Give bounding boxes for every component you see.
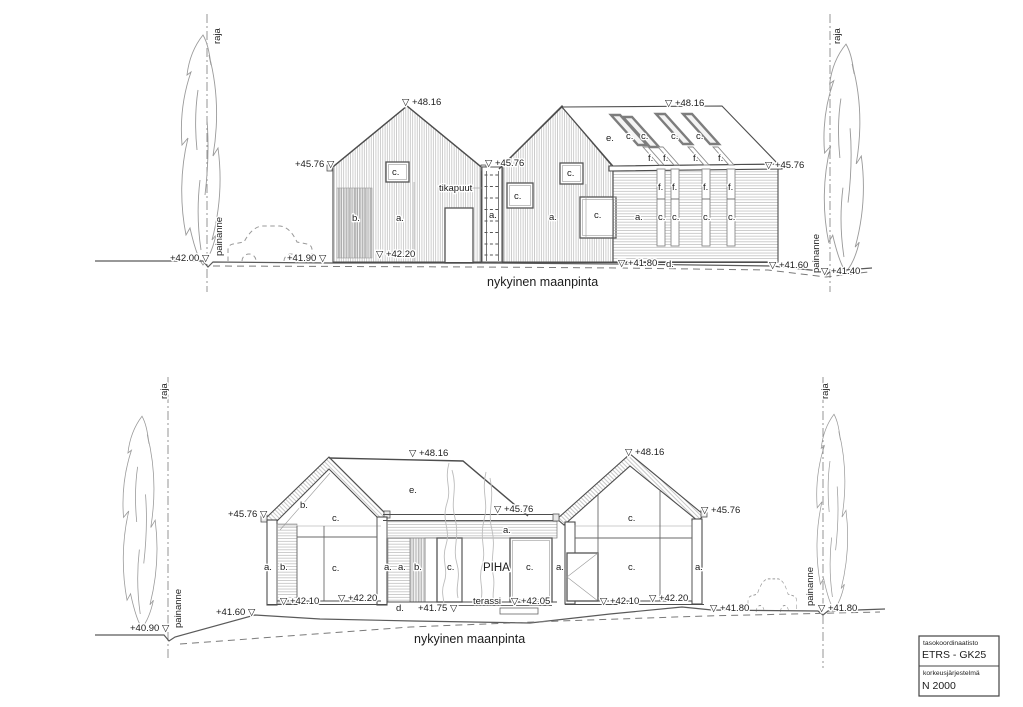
part-c-window-4: c. bbox=[594, 210, 601, 221]
height-system-value: N 2000 bbox=[922, 680, 956, 692]
level-floor-42-10-left: ▽ +42.10 bbox=[280, 596, 319, 607]
part-a-right-wall: a. bbox=[695, 562, 703, 573]
ground-surface-label: nykyinen maanpinta bbox=[414, 632, 525, 646]
part-b-left-band: b. bbox=[280, 562, 288, 573]
proposed-ground-line bbox=[95, 261, 872, 275]
tree-right bbox=[817, 414, 848, 610]
coordinate-system-value: ETRS - GK25 bbox=[922, 649, 986, 661]
fascia-band bbox=[387, 521, 557, 538]
part-f-roof-3: f. bbox=[693, 153, 698, 164]
part-f-roof-2: f. bbox=[663, 153, 668, 164]
part-a-mid-1: a. bbox=[384, 562, 392, 573]
level-floor-42-10-right: ▽ +42.10 bbox=[600, 596, 639, 607]
part-c-window-2: c. bbox=[514, 191, 521, 202]
ladder-label: tikapuut bbox=[439, 183, 473, 194]
depression-right-label: painanne bbox=[805, 567, 816, 606]
elevation-drawing-sheet: ▽ +48.16+45.76 ▽▽ +45.76▽ +48.16▽ +45.76… bbox=[0, 0, 1023, 707]
level-ridge-right-house: ▽ +48.16 bbox=[665, 98, 704, 109]
part-c-strip-3: c. bbox=[703, 212, 710, 223]
part-b-roof-inner: b. bbox=[300, 500, 308, 511]
part-d-ground: d. bbox=[396, 603, 404, 614]
part-a-wall-1: a. bbox=[396, 213, 404, 224]
level-ground-40-90: +40.90 ▽ bbox=[130, 623, 170, 634]
part-a-ladder-bay: a. bbox=[489, 210, 497, 221]
tree-left bbox=[123, 416, 157, 628]
part-a-mid-2: a. bbox=[398, 562, 406, 573]
level-eave-right-house: ▽ +45.76 bbox=[765, 160, 804, 171]
level-floor-42-20: ▽ +42.20 bbox=[376, 249, 415, 260]
boundary-left-label: raja bbox=[212, 27, 223, 44]
level-eave-left-house: +45.76 ▽ bbox=[228, 509, 268, 520]
part-c-skylight-2: c. bbox=[641, 131, 648, 142]
roof-band bbox=[265, 457, 387, 526]
level-eave-left-house: +45.76 ▽ bbox=[295, 159, 335, 170]
part-c-main-window-right: c. bbox=[628, 562, 635, 573]
part-b-mid: b. bbox=[414, 562, 422, 573]
ground-surface-label: nykyinen maanpinta bbox=[487, 275, 598, 289]
title-block: tasokoordinaatisto ETRS - GK25 korkeusjä… bbox=[919, 636, 999, 696]
part-f-strip-4: f. bbox=[728, 182, 733, 193]
part-c-skylight-1: c. bbox=[626, 131, 633, 142]
part-d-ground: d. bbox=[666, 259, 674, 270]
bottom-elevation: ▽ +48.16▽ +48.16+45.76 ▽▽ +45.76▽ +45.76… bbox=[95, 377, 885, 668]
part-f-roof-4: f. bbox=[718, 153, 723, 164]
part-c-mid-1: c. bbox=[447, 562, 454, 573]
part-c-gable-right: c. bbox=[628, 513, 635, 524]
door bbox=[445, 208, 473, 263]
left-house-section bbox=[261, 457, 390, 605]
top-elevation: ▽ +48.16+45.76 ▽▽ +45.76▽ +48.16▽ +45.76… bbox=[95, 14, 872, 292]
boundary-left-label: raja bbox=[159, 382, 170, 399]
level-ground-41-60: +41.60 ▽ bbox=[216, 607, 256, 618]
level-ground-42-00: +42.00 ▽ bbox=[170, 253, 210, 264]
level-floor-42-20-left: ▽ +42.20 bbox=[338, 593, 377, 604]
courtyard-label: PIHA bbox=[483, 562, 510, 574]
part-c-skylight-3: c. bbox=[671, 131, 678, 142]
right-house-section bbox=[553, 454, 707, 605]
boundary-right-label: raja bbox=[832, 27, 843, 44]
part-a-left-wall: a. bbox=[264, 562, 272, 573]
terrace-label: terassi bbox=[473, 596, 501, 607]
level-ground-41-80-2: ▽ +41.80 bbox=[818, 603, 857, 614]
level-ridge-line: ▽ +48.16 bbox=[409, 448, 448, 459]
level-eave-middle: ▽ +45.76 bbox=[494, 504, 533, 515]
part-f-strip-3: f. bbox=[703, 182, 708, 193]
level-ground-41-40: ▽ +41.40 bbox=[821, 266, 860, 277]
level-floor-42-20-right: ▽ +42.20 bbox=[649, 593, 688, 604]
level-ground-41-90: +41.90 ▽ bbox=[287, 253, 327, 264]
level-ground-41-75: +41.75 ▽ bbox=[418, 603, 458, 614]
part-c-window-3: c. bbox=[567, 168, 574, 179]
part-e-roof: e. bbox=[409, 485, 417, 496]
depression-left-label: painanne bbox=[173, 589, 184, 628]
part-a-fascia: a. bbox=[503, 525, 511, 536]
door-post bbox=[425, 538, 437, 602]
part-c-window-1: c. bbox=[392, 167, 399, 178]
level-ground-41-80: ▽ +41.80 bbox=[618, 258, 657, 269]
part-f-strip-2: f. bbox=[672, 182, 677, 193]
level-eave-right-house: ▽ +45.76 bbox=[701, 505, 740, 516]
part-f-strip-1: f. bbox=[658, 182, 663, 193]
level-ridge-right-house: ▽ +48.16 bbox=[625, 447, 664, 458]
depression-left-label: painanne bbox=[214, 217, 225, 256]
part-c-gable-window: c. bbox=[332, 513, 339, 524]
part-c-mid-2: c. bbox=[526, 562, 533, 573]
part-b-screen: b. bbox=[352, 213, 360, 224]
height-system-label: korkeusjärjestelmä bbox=[923, 670, 980, 677]
part-a-wall-2: a. bbox=[549, 212, 557, 223]
braced-door bbox=[567, 553, 598, 601]
bottom-elevation-labels: ▽ +48.16▽ +48.16+45.76 ▽▽ +45.76▽ +45.76… bbox=[130, 382, 857, 646]
part-a-mid-3: a. bbox=[556, 562, 564, 573]
level-ground-41-80-1: ▽ +41.80 bbox=[710, 603, 749, 614]
part-c-skylight-4: c. bbox=[696, 131, 703, 142]
part-a-wall-3: a. bbox=[635, 212, 643, 223]
right-wall bbox=[377, 517, 387, 605]
boundary-right-label: raja bbox=[820, 382, 831, 399]
level-ridge-left-house: ▽ +48.16 bbox=[402, 97, 441, 108]
part-c-strip-1: c. bbox=[658, 212, 665, 223]
eave-block bbox=[553, 514, 559, 521]
terrace-step bbox=[500, 608, 538, 614]
car-outline bbox=[748, 579, 797, 612]
level-ground-41-60: ▽ +41.60 bbox=[769, 260, 808, 271]
part-c-strip-4: c. bbox=[728, 212, 735, 223]
depression-right-label: painanne bbox=[811, 234, 822, 273]
part-c-main-window-left: c. bbox=[332, 563, 339, 574]
part-c-strip-2: c. bbox=[672, 212, 679, 223]
level-terrace-42-05: ▽ +42.05 bbox=[511, 596, 550, 607]
part-f-roof-1: f. bbox=[648, 153, 653, 164]
coordinate-system-label: tasokoordinaatisto bbox=[923, 640, 978, 647]
level-valley: ▽ +45.76 bbox=[485, 158, 524, 169]
glazing-mullions bbox=[297, 518, 377, 601]
part-e-roof: e. bbox=[606, 133, 614, 144]
